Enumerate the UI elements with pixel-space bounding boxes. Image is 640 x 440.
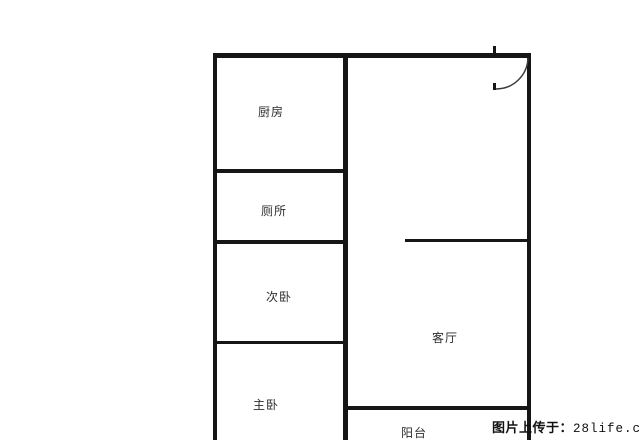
room-label-master-bedroom: 主卧 [253, 399, 279, 412]
room-label-toilet: 厕所 [261, 205, 287, 218]
wall-toilet-bottom [213, 240, 348, 244]
wall-bedroom-divider [213, 341, 348, 344]
room-label-kitchen: 厨房 [258, 106, 284, 119]
wall-kitchen-bottom [213, 169, 348, 173]
watermark-site: 28life.com [573, 422, 640, 436]
wall-left [213, 53, 217, 440]
entry-door-arc-icon [480, 42, 536, 98]
watermark: 图片上传于： 28life.com [492, 417, 640, 436]
wall-right [527, 53, 531, 440]
floorplan-image: 厨房 厕所 次卧 主卧 客厅 阳台 图片上传于： 28life.com [0, 0, 640, 440]
room-label-second-bedroom: 次卧 [266, 291, 292, 304]
wall-living-room-partition [405, 239, 531, 242]
room-label-balcony: 阳台 [401, 427, 427, 440]
wall-balcony [343, 406, 531, 410]
watermark-prefix: 图片上传于： [492, 417, 573, 436]
wall-middle-vertical [343, 53, 348, 440]
room-label-living-room: 客厅 [432, 332, 458, 345]
